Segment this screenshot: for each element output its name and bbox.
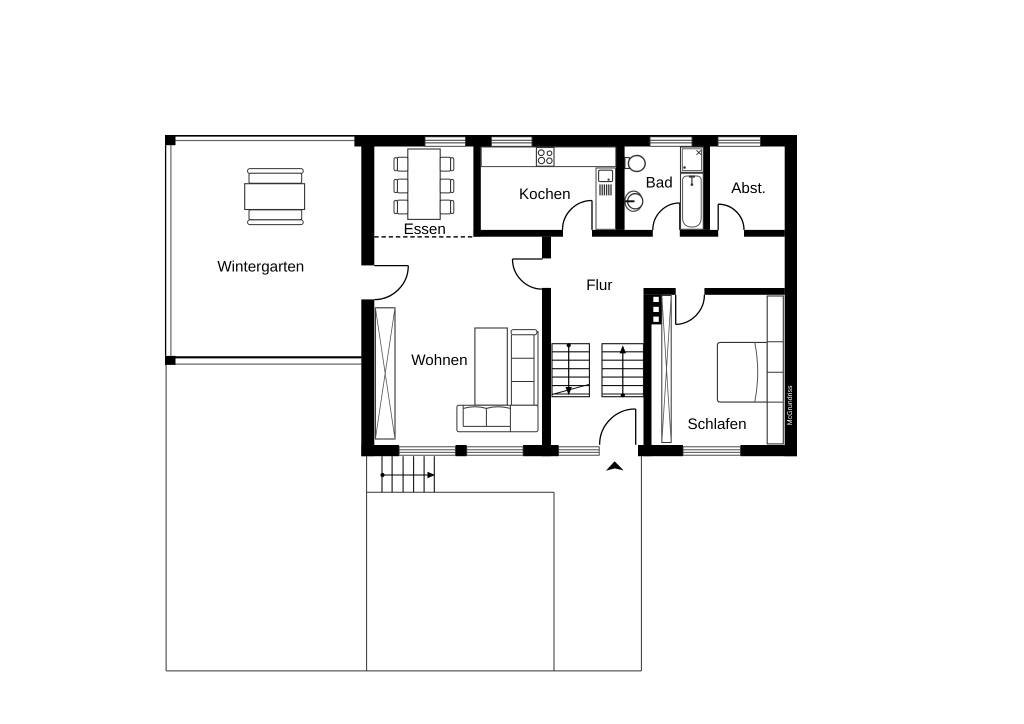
svg-text:Bad: Bad — [646, 175, 673, 192]
svg-text:Abst.: Abst. — [731, 180, 766, 197]
svg-text:Wintergarten: Wintergarten — [217, 259, 304, 276]
svg-text:McGrundriss: McGrundriss — [786, 385, 794, 425]
svg-text:Essen: Essen — [404, 221, 446, 238]
svg-text:Wohnen: Wohnen — [411, 352, 467, 369]
svg-text:Kochen: Kochen — [519, 186, 571, 203]
svg-text:Flur: Flur — [586, 277, 612, 294]
svg-text:Schlafen: Schlafen — [687, 416, 746, 433]
